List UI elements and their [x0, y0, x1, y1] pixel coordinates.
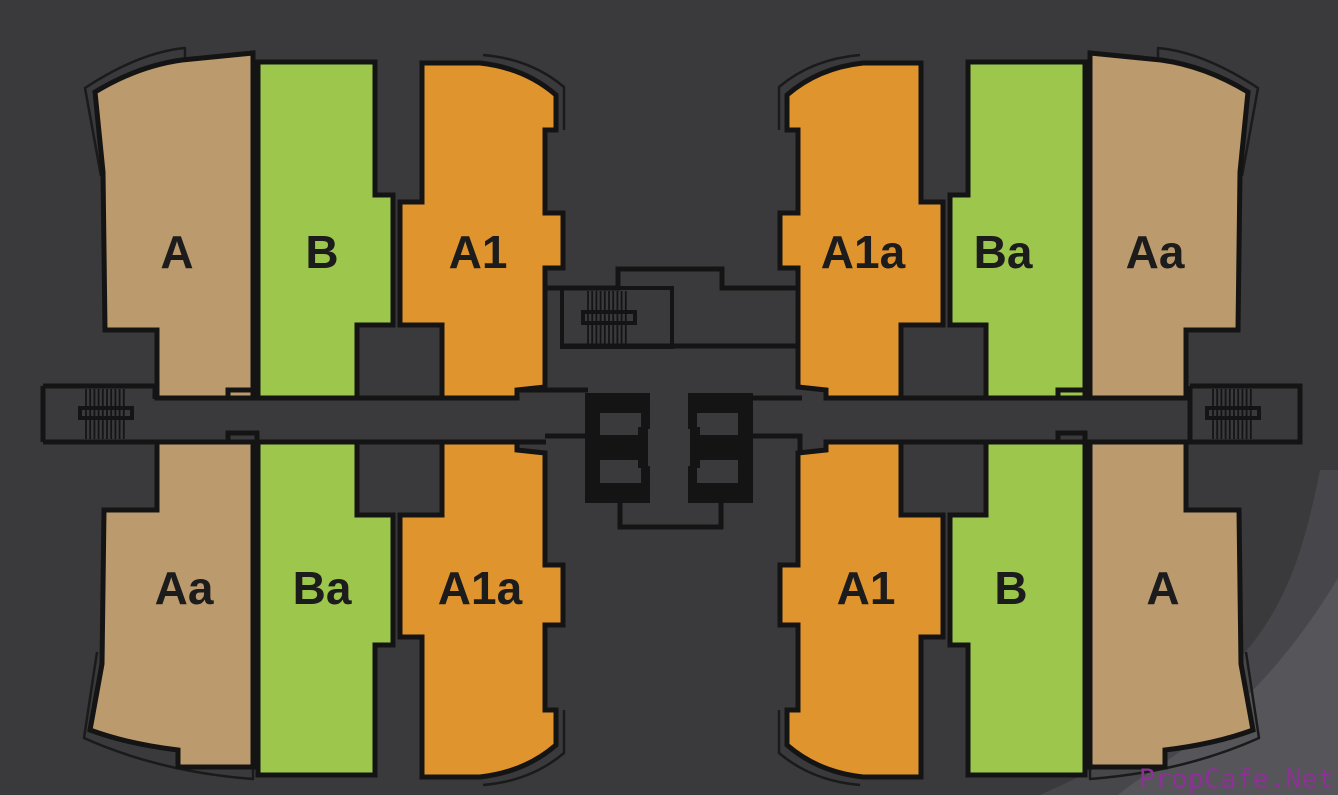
stairs-icon-center — [562, 288, 672, 347]
unit-label-Ba-top-right: Ba — [974, 226, 1033, 278]
unit-label-A1a-bottom-left: A1a — [438, 562, 523, 614]
unit-label-A1-top-left: A1 — [449, 226, 508, 278]
unit-label-Ba-bottom-left: Ba — [293, 562, 352, 614]
unit-label-B-top-left: B — [305, 226, 338, 278]
unit-label-A-bottom-right: A — [1146, 562, 1179, 614]
unit-label-A1a-top-right: A1a — [821, 226, 906, 278]
unit-label-Aa-bottom-left: Aa — [155, 562, 214, 614]
watermark: PropCafe.Net — [1139, 764, 1334, 795]
floor-plan-slide: A B A1 A1a Ba Aa Aa Ba A1a A1 B A PropCa… — [0, 0, 1338, 795]
floor-plan-canvas: A B A1 A1a Ba Aa Aa Ba A1a A1 B A PropCa… — [0, 0, 1338, 795]
unit-label-A1-bottom-right: A1 — [837, 562, 896, 614]
elevator-bank-left — [585, 393, 650, 503]
stairs-icon-left — [80, 389, 132, 439]
stairs-icon-right — [1207, 389, 1259, 439]
unit-label-A-top-left: A — [160, 226, 193, 278]
unit-label-Aa-top-right: Aa — [1126, 226, 1185, 278]
elevator-bank-right — [688, 393, 753, 503]
unit-label-B-bottom-right: B — [994, 562, 1027, 614]
